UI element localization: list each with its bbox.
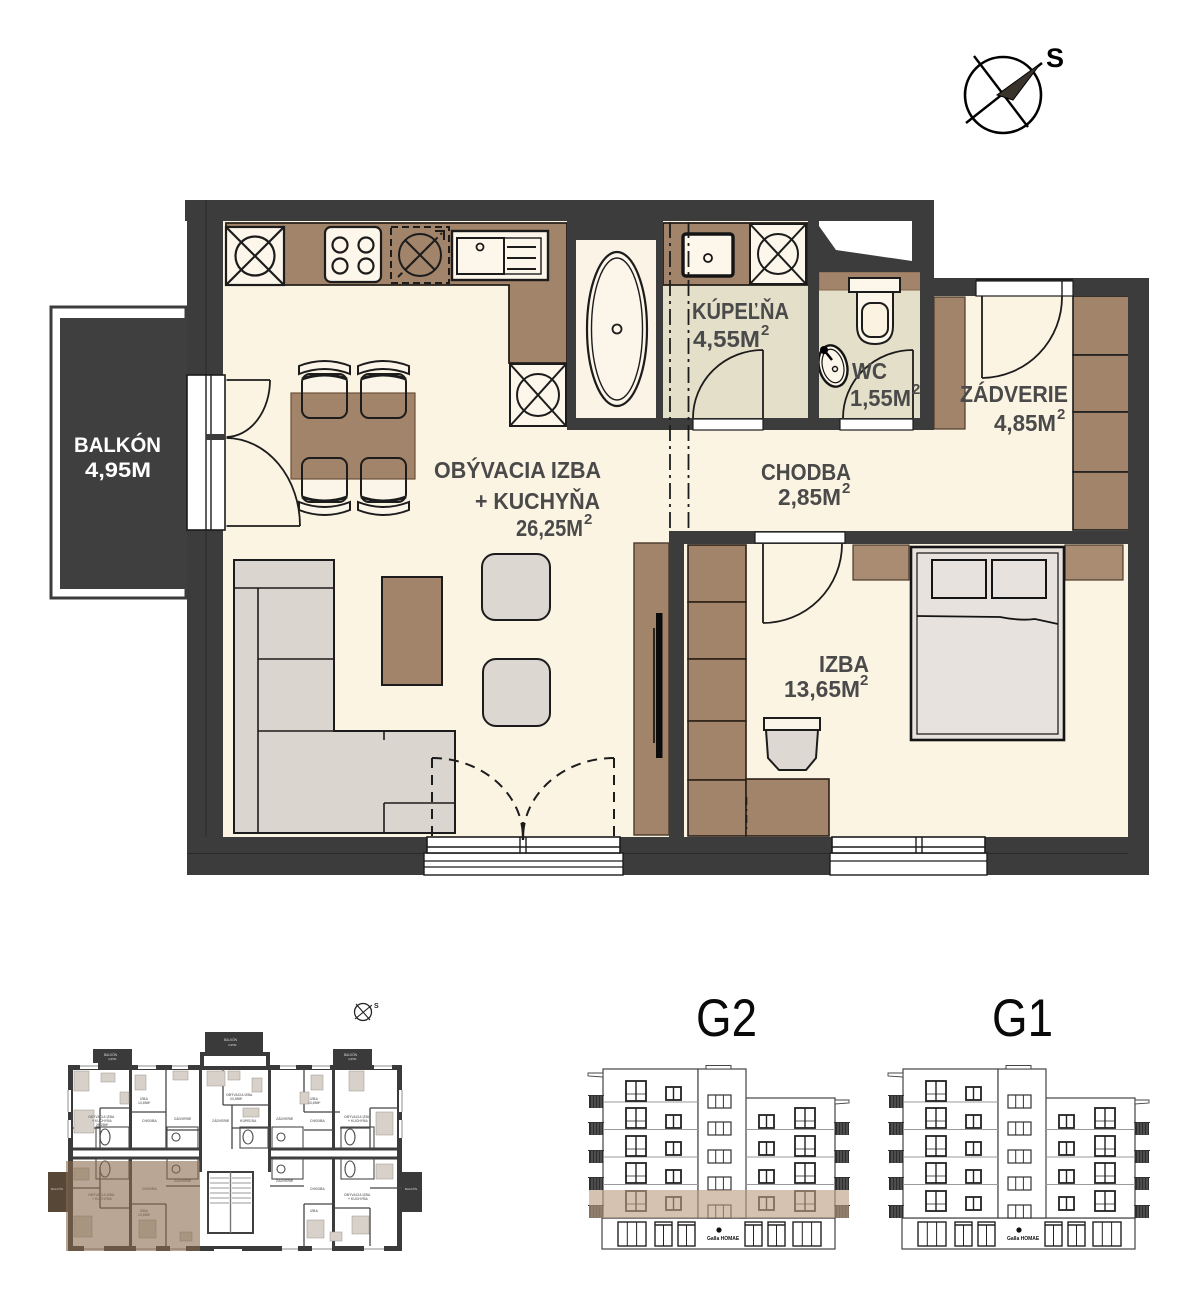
svg-text:KÚPEĽŇA: KÚPEĽŇA	[692, 297, 789, 324]
svg-text:13,65M: 13,65M	[784, 676, 860, 702]
svg-text:3,95M: 3,95M	[228, 1043, 237, 1047]
svg-text:4,85M: 4,85M	[994, 410, 1056, 436]
svg-text:2: 2	[842, 480, 850, 497]
svg-text:13,65M²: 13,65M²	[138, 1101, 151, 1105]
svg-text:WC: WC	[852, 358, 887, 384]
svg-text:2: 2	[1057, 406, 1065, 423]
svg-text:OBÝVACIA IZBA: OBÝVACIA IZBA	[434, 456, 601, 483]
svg-text:G1: G1	[992, 989, 1053, 1048]
svg-text:13,65M²: 13,65M²	[308, 1101, 321, 1105]
svg-text:1,55M: 1,55M	[850, 385, 911, 411]
svg-text:ZÁDVERIE: ZÁDVERIE	[276, 1178, 294, 1183]
svg-text:KÚPEĽŇA: KÚPEĽŇA	[240, 1118, 257, 1123]
svg-text:23,55M²: 23,55M²	[230, 1097, 243, 1101]
svg-text:S: S	[1046, 43, 1064, 73]
svg-text:BALKÓN: BALKÓN	[51, 1186, 63, 1191]
svg-text:ZÁDVERIE: ZÁDVERIE	[212, 1118, 230, 1123]
svg-text:BALKÓN: BALKÓN	[224, 1037, 238, 1042]
svg-text:4,95M: 4,95M	[85, 459, 151, 482]
svg-text:ZÁDVERIE: ZÁDVERIE	[174, 1116, 192, 1121]
svg-text:2: 2	[761, 322, 769, 339]
svg-text:ZÁDVERIE: ZÁDVERIE	[960, 380, 1068, 407]
svg-text:BALKÓN: BALKÓN	[74, 433, 161, 457]
svg-text:IZBA: IZBA	[310, 1209, 318, 1213]
svg-text:+ KUCHYŇA: + KUCHYŇA	[348, 1196, 368, 1201]
svg-text:4,95M: 4,95M	[348, 1057, 357, 1061]
svg-text:2: 2	[860, 672, 868, 689]
svg-text:ZÁDVERIE: ZÁDVERIE	[276, 1116, 294, 1121]
svg-text:26,25M²: 26,25M²	[96, 1123, 109, 1127]
svg-text:+ KUCHYŇA: + KUCHYŇA	[475, 487, 600, 514]
svg-text:+ KUCHYŇA: + KUCHYŇA	[348, 1118, 368, 1123]
svg-text:S: S	[374, 1003, 379, 1010]
svg-text:CHODBA: CHODBA	[142, 1119, 157, 1123]
svg-text:CHODBA: CHODBA	[310, 1119, 325, 1123]
svg-text:2: 2	[912, 381, 920, 398]
svg-text:CHODBA: CHODBA	[310, 1187, 325, 1191]
svg-text:G2: G2	[696, 989, 757, 1048]
svg-text:BALKÓN: BALKÓN	[405, 1186, 417, 1191]
svg-text:4,55M: 4,55M	[693, 326, 760, 352]
svg-text:CHODBA: CHODBA	[761, 459, 851, 485]
svg-text:26,25M: 26,25M	[516, 515, 583, 541]
svg-text:4,95M: 4,95M	[108, 1057, 117, 1061]
svg-text:2,85M: 2,85M	[778, 484, 841, 510]
svg-text:2: 2	[584, 511, 592, 528]
